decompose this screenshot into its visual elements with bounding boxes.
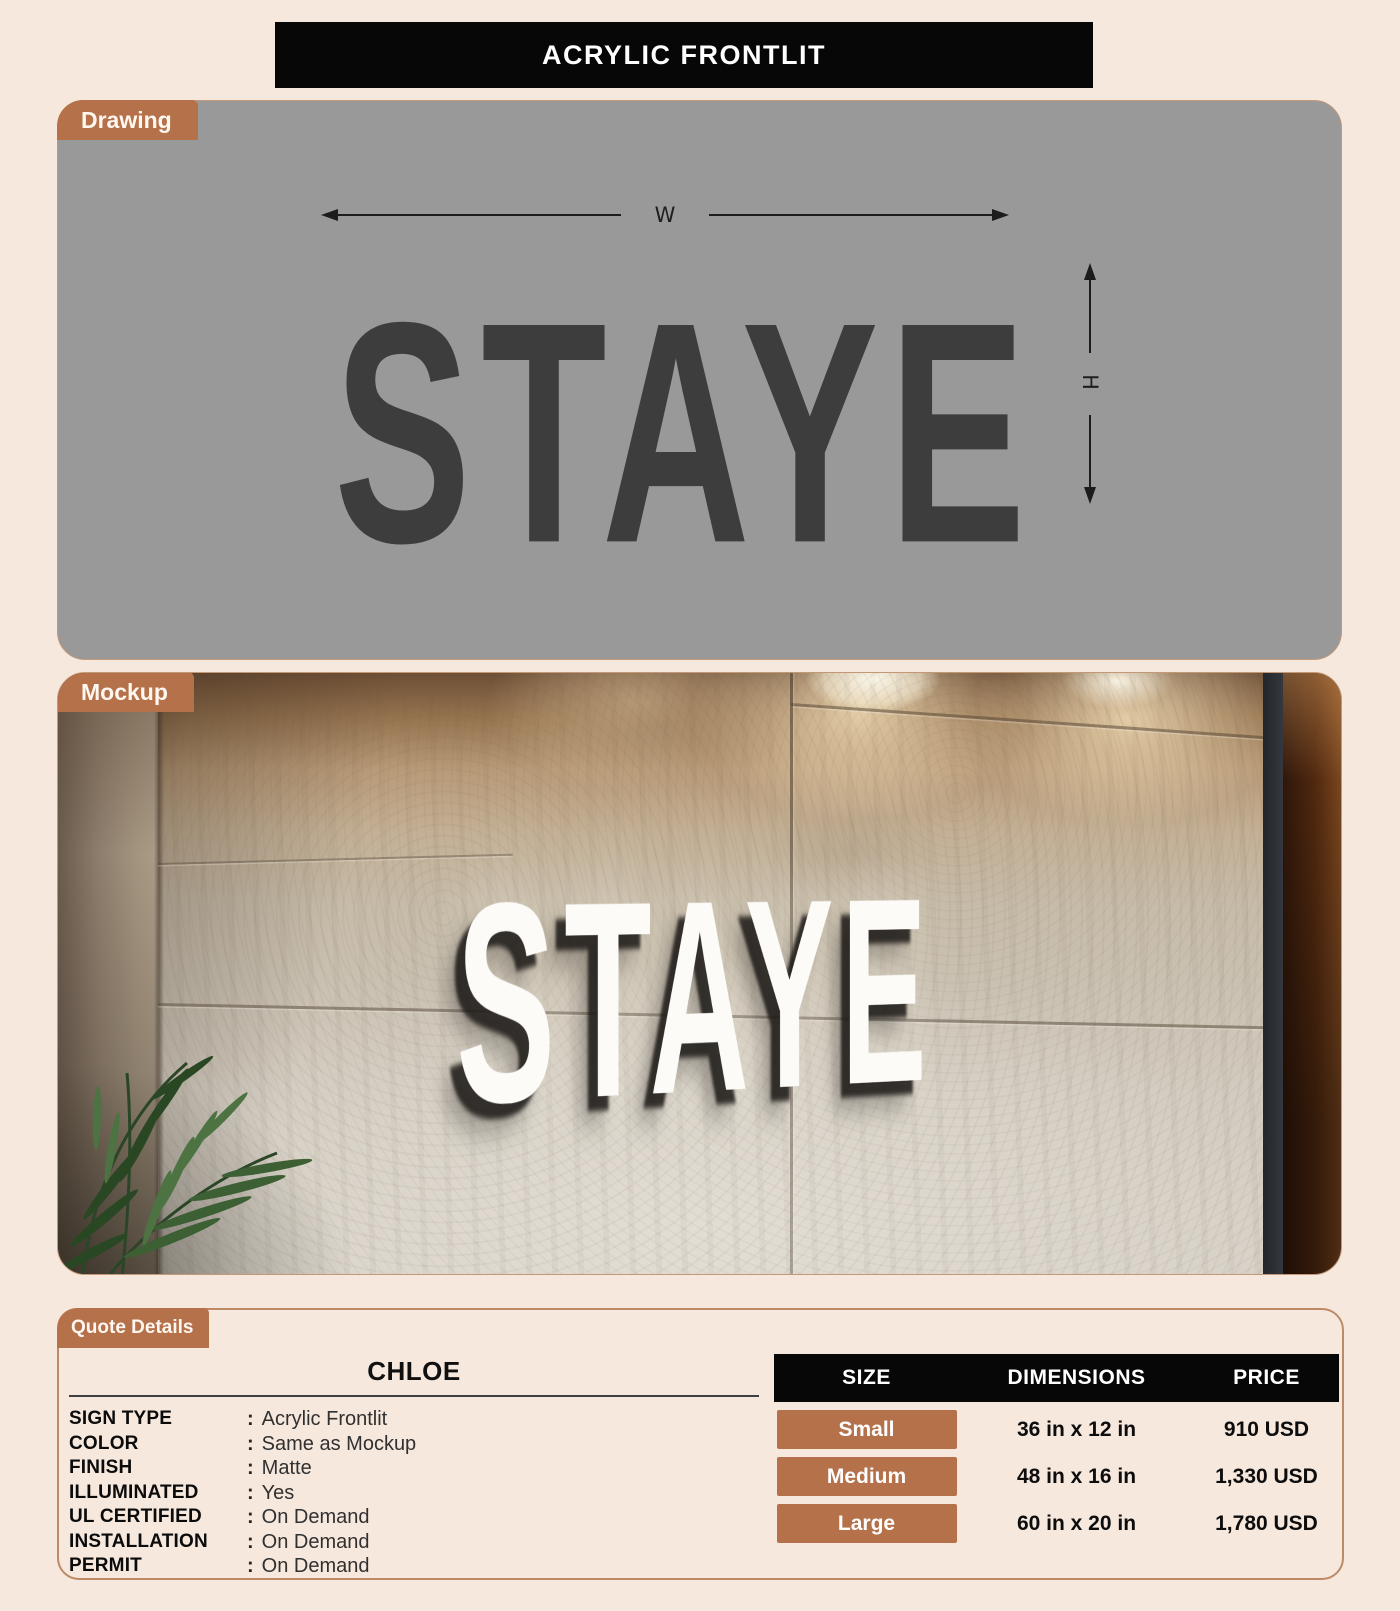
quote-section-tag: Quote Details [57,1308,209,1348]
spec-separator: : [247,1481,254,1506]
mockup-panel: STAYE [57,672,1342,1275]
spec-value: Yes [262,1481,295,1506]
mockup-tag-label: Mockup [81,679,168,706]
spec-separator: : [247,1554,254,1579]
price-table-header: SIZE DIMENSIONS PRICE [774,1354,1339,1402]
size-badge-large: Large [777,1504,957,1543]
spec-row: PERMIT : On Demand [69,1554,759,1579]
column-header-price: PRICE [1194,1366,1339,1390]
price-table: SIZE DIMENSIONS PRICE Small 36 in x 12 i… [774,1354,1339,1543]
table-row: Small 36 in x 12 in 910 USD [774,1410,1339,1449]
spec-value: Matte [262,1456,312,1481]
table-row: Large 60 in x 20 in 1,780 USD [774,1504,1339,1543]
spec-label: ILLUMINATED [69,1481,247,1506]
dimensions-cell: 36 in x 12 in [959,1418,1194,1442]
mockup-sign: STAYE [456,841,855,973]
spec-separator: : [247,1530,254,1555]
spec-separator: : [247,1407,254,1432]
specs-list: SIGN TYPE : Acrylic Frontlit COLOR : Sam… [69,1407,759,1579]
spec-row: UL CERTIFIED : On Demand [69,1505,759,1530]
price-cell: 910 USD [1194,1418,1339,1442]
spec-label: PERMIT [69,1554,247,1579]
drawing-section-tag: Drawing [57,100,198,140]
mockup-sign-text: STAYE [456,841,934,1171]
spec-value: On Demand [262,1530,370,1555]
price-cell: 1,330 USD [1194,1465,1339,1489]
quote-spec-column: CHLOE SIGN TYPE : Acrylic Frontlit COLOR… [69,1356,759,1579]
mockup-section-tag: Mockup [57,672,194,712]
spec-separator: : [247,1505,254,1530]
drawing-tag-label: Drawing [81,107,172,134]
spec-value: On Demand [262,1505,370,1530]
dimensions-cell: 60 in x 20 in [959,1512,1194,1536]
quote-divider [69,1395,759,1397]
spec-row: ILLUMINATED : Yes [69,1481,759,1506]
quote-details-panel: Quote Details CHLOE SIGN TYPE : Acrylic … [57,1308,1344,1580]
spec-label: SIGN TYPE [69,1407,247,1432]
spec-label: COLOR [69,1432,247,1457]
spec-label: UL CERTIFIED [69,1505,247,1530]
price-cell: 1,780 USD [1194,1512,1339,1536]
table-row: Medium 48 in x 16 in 1,330 USD [774,1457,1339,1496]
column-header-dimensions: DIMENSIONS [959,1366,1194,1390]
quote-name: CHLOE [69,1356,759,1387]
height-label: H [1077,362,1103,402]
drawing-panel: Drawing W STAYE H [57,100,1342,660]
spec-row: FINISH : Matte [69,1456,759,1481]
plant-icon [57,968,382,1275]
width-label: W [321,203,1009,227]
drawing-sign-text: STAYE [334,251,1036,614]
spec-label: FINISH [69,1456,247,1481]
column-header-size: SIZE [774,1366,959,1390]
dimensions-cell: 48 in x 16 in [959,1465,1194,1489]
spec-separator: : [247,1432,254,1457]
spec-row: SIGN TYPE : Acrylic Frontlit [69,1407,759,1432]
spec-separator: : [247,1456,254,1481]
spec-value: On Demand [262,1554,370,1579]
spec-row: COLOR : Same as Mockup [69,1432,759,1457]
spec-value: Same as Mockup [262,1432,417,1457]
drawing-sign: STAYE [463,251,907,401]
page-title-banner: ACRYLIC FRONTLIT [275,22,1093,88]
size-badge-medium: Medium [777,1457,957,1496]
spec-label: INSTALLATION [69,1530,247,1555]
spec-value: Acrylic Frontlit [262,1407,388,1432]
size-badge-small: Small [777,1410,957,1449]
quote-tag-label: Quote Details [71,1317,193,1339]
page-title: ACRYLIC FRONTLIT [542,40,826,71]
spec-row: INSTALLATION : On Demand [69,1530,759,1555]
